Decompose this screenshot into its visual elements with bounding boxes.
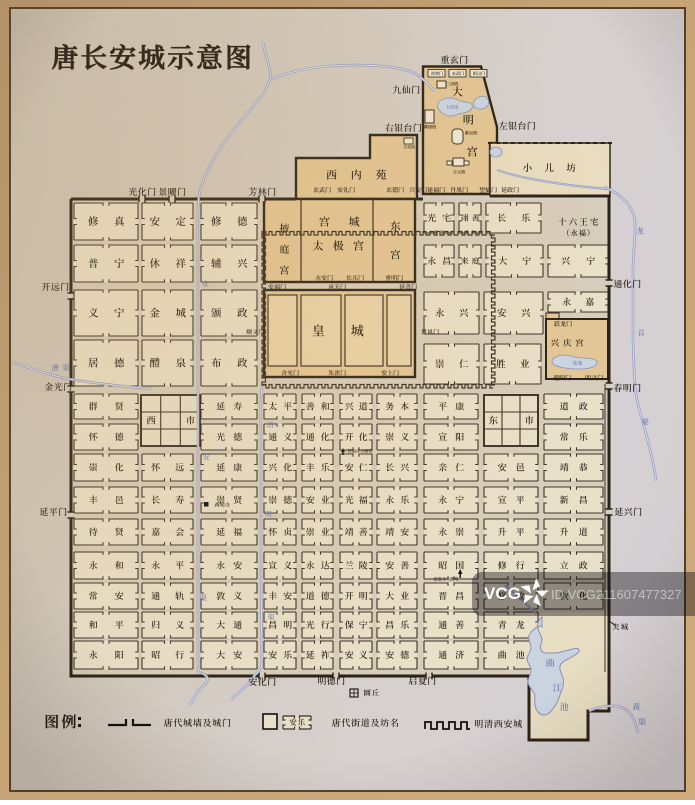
svg-text:VCG: VCG — [484, 584, 521, 603]
svg-text:ID:VCG211607477327: ID:VCG211607477327 — [551, 587, 682, 602]
